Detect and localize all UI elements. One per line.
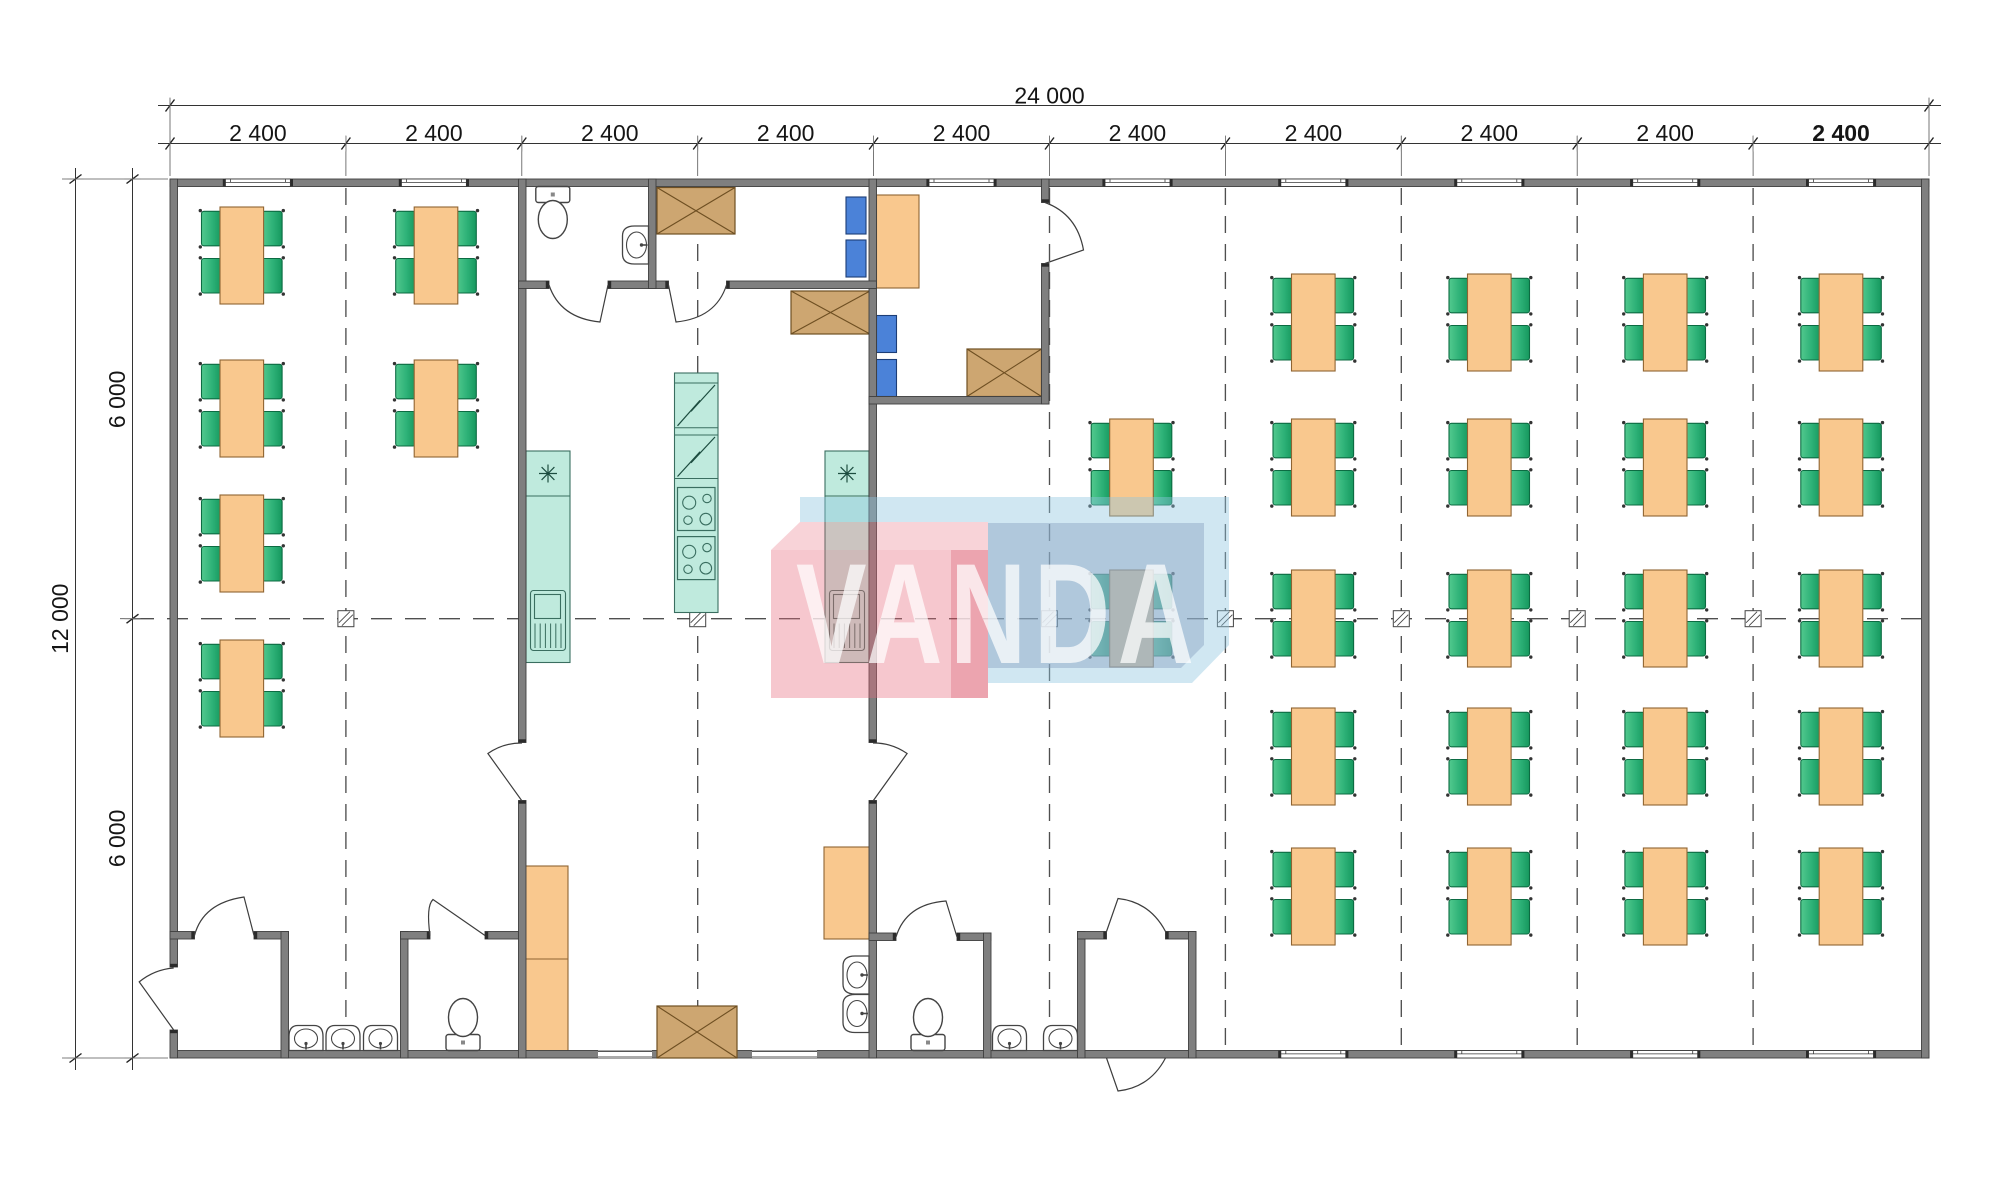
svg-text:2 400: 2 400	[581, 120, 639, 146]
svg-text:2 400: 2 400	[229, 120, 287, 146]
svg-text:2 400: 2 400	[1460, 120, 1518, 146]
svg-text:24 000: 24 000	[1014, 83, 1084, 109]
svg-text:6 000: 6 000	[104, 810, 130, 868]
svg-text:2 400: 2 400	[933, 120, 991, 146]
svg-text:6 000: 6 000	[104, 371, 130, 429]
svg-text:2 400: 2 400	[1109, 120, 1167, 146]
svg-text:2 400: 2 400	[1285, 120, 1343, 146]
svg-text:2 400: 2 400	[1636, 120, 1694, 146]
svg-text:12 000: 12 000	[47, 584, 73, 654]
svg-text:VANDA: VANDA	[796, 533, 1201, 693]
svg-text:2 400: 2 400	[757, 120, 815, 146]
svg-text:2 400: 2 400	[1812, 120, 1870, 146]
svg-text:2 400: 2 400	[405, 120, 463, 146]
